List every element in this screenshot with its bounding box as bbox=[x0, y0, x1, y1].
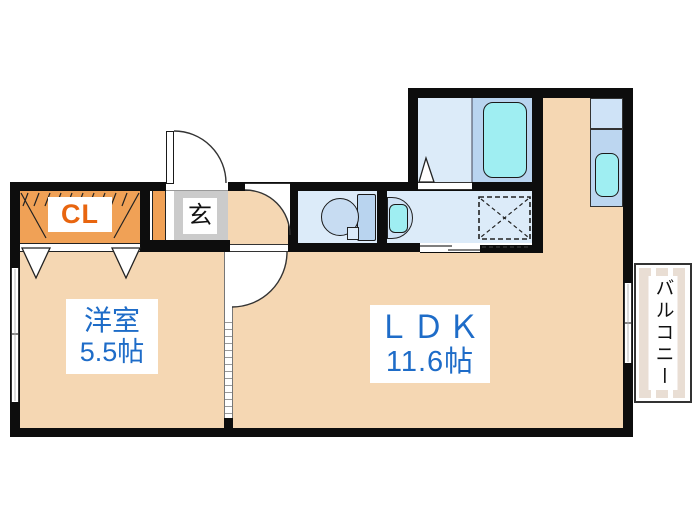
plan-symbols-layer bbox=[0, 0, 700, 525]
entrance-door-swing-area bbox=[174, 131, 226, 183]
western-room-label-box: 洋室 5.5帖 bbox=[66, 299, 158, 374]
western-room-name: 洋室 bbox=[84, 305, 140, 337]
entrance-label: 玄 bbox=[188, 202, 212, 230]
ldk-label-box: ＬＤＫ 11.6帖 bbox=[370, 305, 490, 383]
closet-label: CL bbox=[61, 199, 99, 230]
closet-door-triangle-icon bbox=[112, 248, 140, 278]
ldk-name: ＬＤＫ bbox=[377, 309, 482, 346]
closet-door-triangle-icon bbox=[22, 248, 50, 278]
floor-plan: バルコニー bbox=[0, 0, 700, 525]
western-room-area: 5.5帖 bbox=[80, 337, 145, 368]
closet-label-box: CL bbox=[48, 197, 112, 232]
toilet-door-swing-area bbox=[245, 190, 290, 235]
ldk-area: 11.6帖 bbox=[386, 346, 474, 379]
entrance-label-box: 玄 bbox=[183, 198, 217, 234]
bath-door-triangle-icon bbox=[419, 158, 434, 182]
ldk-door-swing-area bbox=[232, 252, 287, 307]
